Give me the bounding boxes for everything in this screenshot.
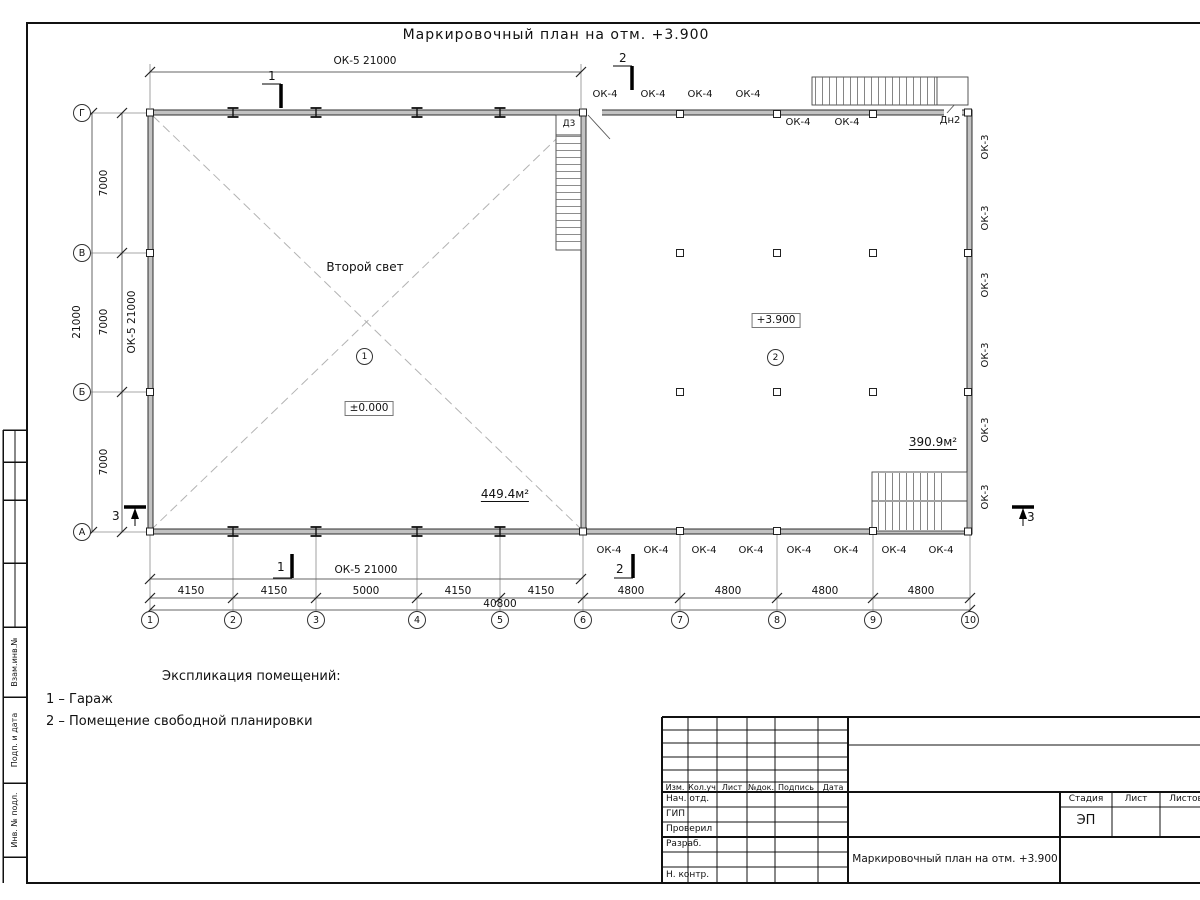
tb-row-nkontr: Н. контр. bbox=[666, 871, 709, 880]
room2-area: 390.9м² bbox=[909, 436, 957, 450]
window-mark-ok4: ОК-4 bbox=[644, 546, 669, 556]
legend-title: Экспликация помещений: bbox=[162, 670, 341, 683]
tb-col-koluch: Кол.уч bbox=[688, 784, 716, 792]
dim-seg: 4800 bbox=[908, 586, 935, 597]
page-title: Маркировочный план на отм. +3.900 bbox=[403, 28, 710, 42]
tb-row-gip: ГИП bbox=[666, 810, 685, 819]
tb-col-ndok: №док. bbox=[748, 784, 774, 792]
dim-left-7000-3: 7000 bbox=[99, 449, 110, 476]
window-mark-ok4: ОК-4 bbox=[688, 90, 713, 100]
tb-stage-label: Стадия bbox=[1069, 795, 1104, 804]
axis-row-b: Б bbox=[73, 383, 91, 401]
window-mark-ok4: ОК-4 bbox=[929, 546, 954, 556]
stair-bottom-right bbox=[872, 472, 967, 531]
axis-col-2: 2 bbox=[224, 611, 242, 629]
tb-row-proveril: Проверил bbox=[666, 825, 712, 834]
legend-item-2: 2 – Помещение свободной планировки bbox=[46, 715, 313, 728]
stamp-podp-data: Подп. и дата bbox=[11, 713, 19, 768]
window-mark-ok4: ОК-4 bbox=[692, 546, 717, 556]
section-mark-1-bottom: 1 bbox=[277, 561, 285, 573]
window-mark-ok4: ОК-4 bbox=[641, 90, 666, 100]
tb-row-razrab: Разраб. bbox=[666, 840, 701, 849]
room1-area: 449.4м² bbox=[481, 488, 529, 502]
room2-number: 2 bbox=[767, 349, 784, 366]
tb-col-izm: Изм. bbox=[666, 784, 685, 792]
stair-mark-d3: Д3 bbox=[563, 120, 576, 129]
dim-seg: 4800 bbox=[618, 586, 645, 597]
axis-col-5: 5 bbox=[491, 611, 509, 629]
axis-col-6: 6 bbox=[574, 611, 592, 629]
axis-col-3: 3 bbox=[307, 611, 325, 629]
window-mark-ok3: ОК-3 bbox=[981, 135, 991, 160]
axis-col-9: 9 bbox=[864, 611, 882, 629]
tb-sheets-label: Листов bbox=[1169, 795, 1200, 804]
dim-seg: 4150 bbox=[528, 586, 555, 597]
dim-bottom-span: ОК-5 21000 bbox=[335, 565, 398, 576]
stair-d3 bbox=[556, 115, 581, 250]
section-mark-1-top: 1 bbox=[268, 70, 276, 82]
room1-note: Второй свет bbox=[326, 261, 403, 273]
dim-bottom-total: 40800 bbox=[483, 599, 516, 610]
tb-doc-title: Маркировочный план на отм. +3.900 bbox=[852, 854, 1057, 865]
axis-col-7: 7 bbox=[671, 611, 689, 629]
tb-sheet-label: Лист bbox=[1125, 795, 1148, 804]
stamp-vzam-inv: Взам.инв.№ bbox=[11, 637, 19, 686]
tb-col-data: Дата bbox=[823, 784, 844, 792]
room2-elevation: +3.900 bbox=[752, 313, 801, 328]
tb-row-nachotd: Нач. отд. bbox=[666, 795, 709, 804]
section-mark-3-left: 3 bbox=[112, 510, 120, 522]
window-mark-ok3: ОК-3 bbox=[981, 485, 991, 510]
axis-row-g: Г bbox=[73, 104, 91, 122]
window-mark-ok3: ОК-3 bbox=[981, 343, 991, 368]
window-mark-ok4: ОК-4 bbox=[739, 546, 764, 556]
dim-seg: 4150 bbox=[178, 586, 205, 597]
section-mark-3-right: 3 bbox=[1027, 511, 1035, 523]
axis-col-1: 1 bbox=[141, 611, 159, 629]
tb-col-podpis: Подпись bbox=[778, 784, 814, 792]
window-mark-ok4: ОК-4 bbox=[736, 90, 761, 100]
window-mark-ok4: ОК-4 bbox=[786, 118, 811, 128]
plan-linework bbox=[0, 0, 1200, 900]
tb-stage-value: ЭП bbox=[1077, 814, 1096, 827]
stair-exterior bbox=[812, 77, 968, 105]
room1-number: 1 bbox=[356, 348, 373, 365]
dim-seg: 5000 bbox=[353, 586, 380, 597]
stamp-inv-podl: Инв. № подл. bbox=[11, 792, 19, 847]
axis-col-8: 8 bbox=[768, 611, 786, 629]
axis-col-10: 10 bbox=[961, 611, 979, 629]
window-mark-ok4: ОК-4 bbox=[834, 546, 859, 556]
legend-item-1: 1 – Гараж bbox=[46, 693, 113, 706]
axis-row-a: А bbox=[73, 523, 91, 541]
window-mark-ok4: ОК-4 bbox=[882, 546, 907, 556]
sheet-frame bbox=[3, 23, 1200, 883]
dim-seg: 4150 bbox=[261, 586, 288, 597]
section-mark-2-top: 2 bbox=[619, 52, 627, 64]
dim-seg: 4800 bbox=[715, 586, 742, 597]
dim-seg: 4150 bbox=[445, 586, 472, 597]
void-diagonals bbox=[153, 116, 580, 528]
mark-ok5-left-wall: ОК-5 21000 bbox=[127, 291, 138, 354]
axis-col-4: 4 bbox=[408, 611, 426, 629]
window-mark-ok3: ОК-3 bbox=[981, 418, 991, 443]
axis-row-v: В bbox=[73, 244, 91, 262]
dim-left-7000-2: 7000 bbox=[99, 309, 110, 336]
door-mark-dn2: Дн2 bbox=[940, 116, 961, 126]
section-mark-2-bottom: 2 bbox=[616, 563, 624, 575]
window-mark-ok3: ОК-3 bbox=[981, 206, 991, 231]
tb-col-list: Лист bbox=[722, 784, 742, 792]
room1-elevation: ±0.000 bbox=[345, 401, 394, 416]
dim-seg: 4800 bbox=[812, 586, 839, 597]
window-mark-ok3: ОК-3 bbox=[981, 273, 991, 298]
window-mark-ok4: ОК-4 bbox=[593, 90, 618, 100]
dim-left-7000-1: 7000 bbox=[99, 170, 110, 197]
window-mark-ok4: ОК-4 bbox=[787, 546, 812, 556]
window-mark-ok4: ОК-4 bbox=[835, 118, 860, 128]
dim-left-total: 21000 bbox=[72, 305, 83, 338]
dim-top-span: ОК-5 21000 bbox=[334, 56, 397, 67]
drawing-sheet: Маркировочный план на отм. +3.900 ОК-5 2… bbox=[0, 0, 1200, 900]
window-mark-ok4: ОК-4 bbox=[597, 546, 622, 556]
